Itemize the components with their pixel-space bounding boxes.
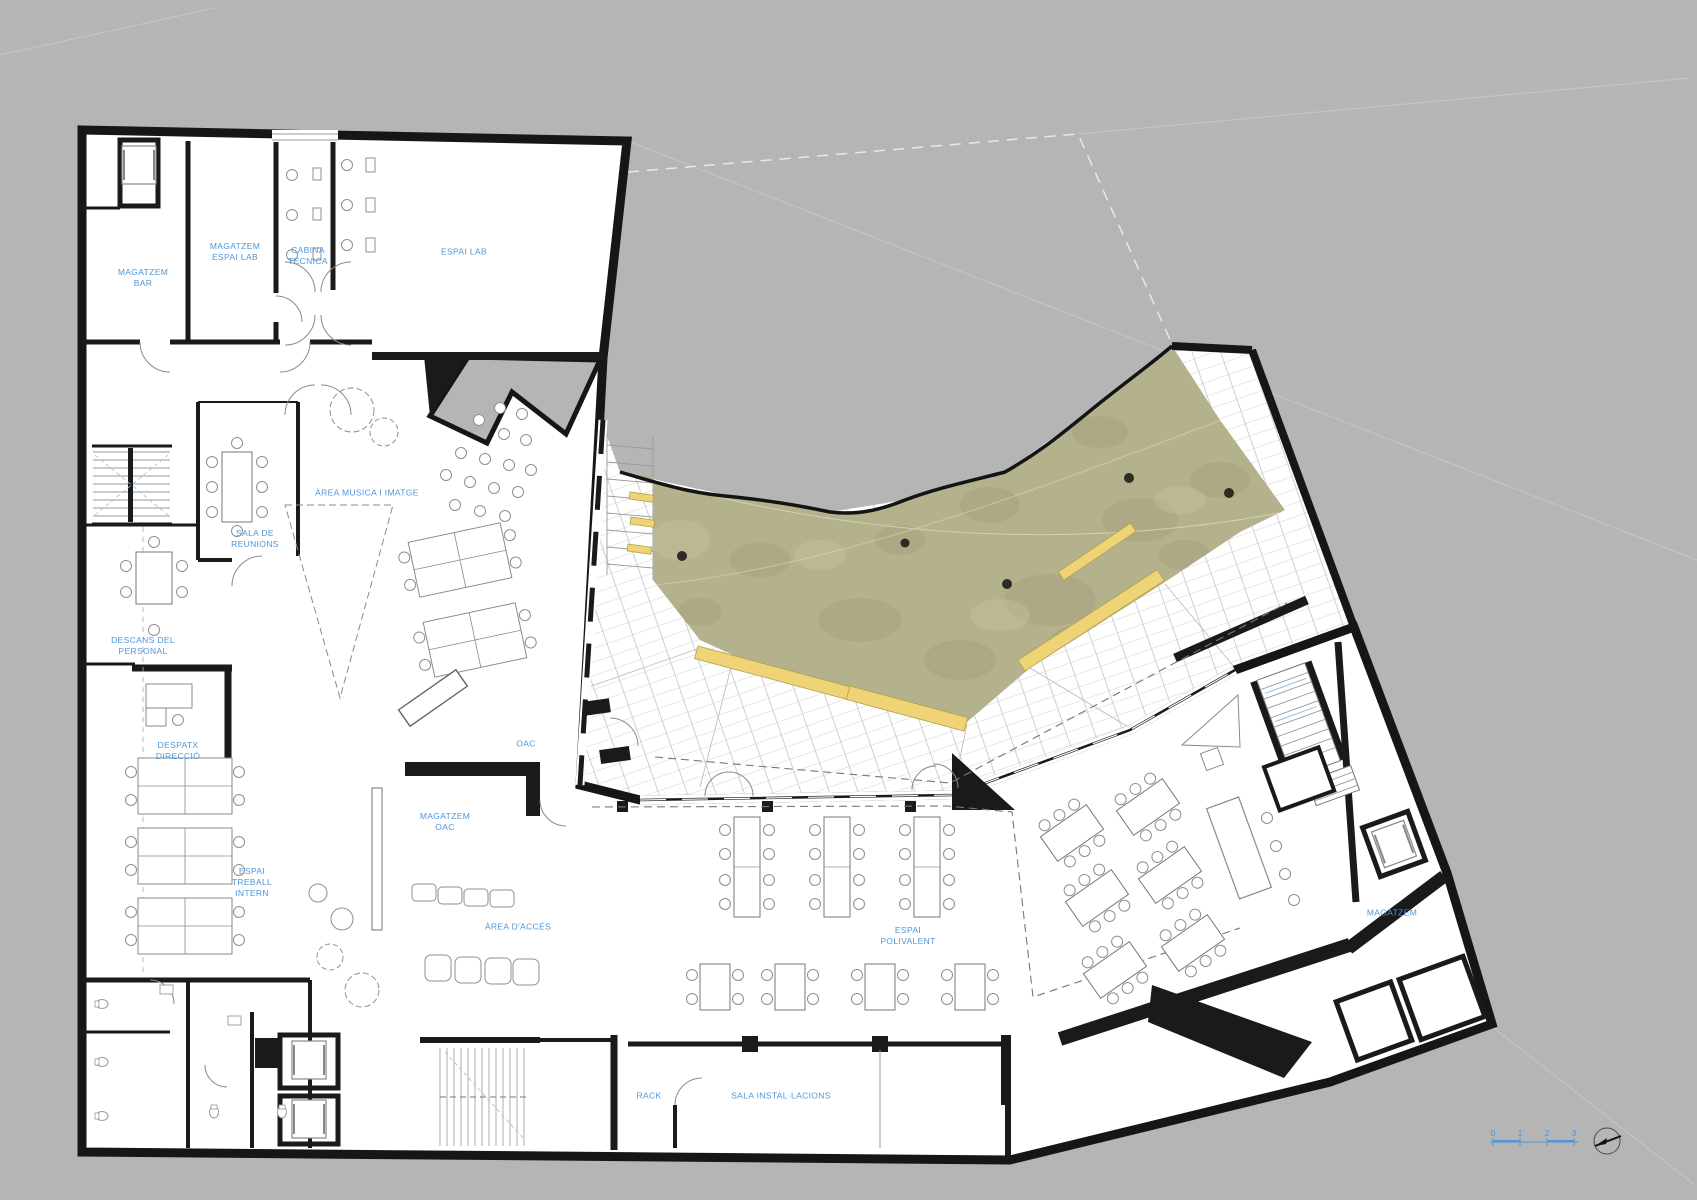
floor-plan-canvas: MAGATZEM BARMAGATZEM ESPAI LABCABINA TEC… [0,0,1697,1200]
floor-plan-drawing [0,0,1697,1200]
